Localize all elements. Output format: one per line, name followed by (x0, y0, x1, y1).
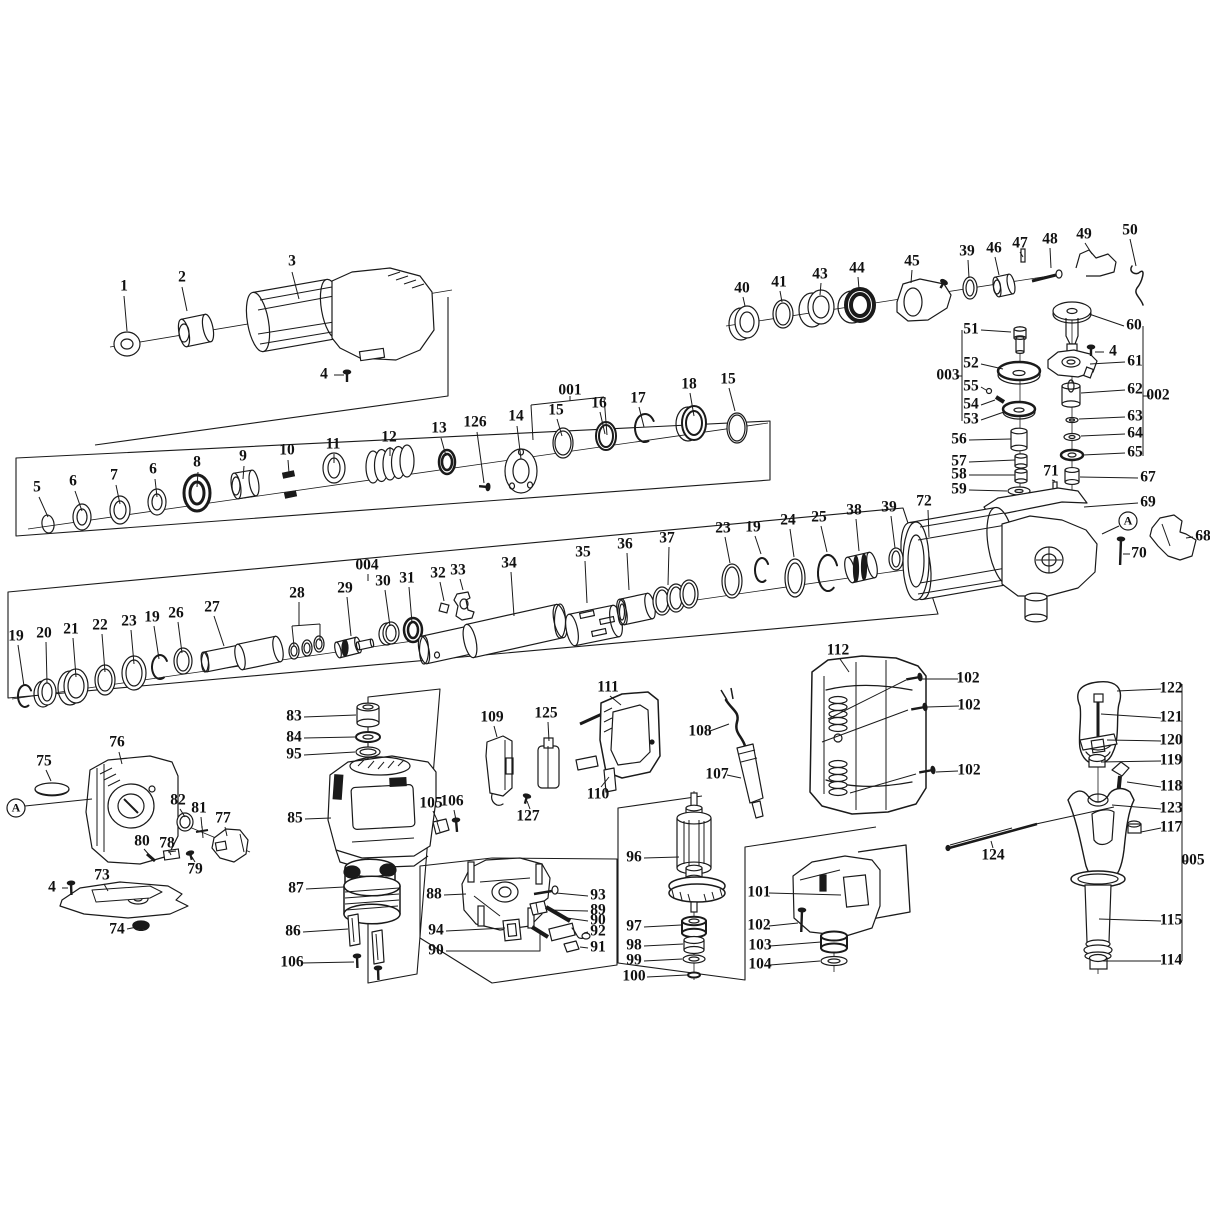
leader-line (1085, 243, 1092, 254)
parts-diagram: AA12345676891011121312614001151617181540… (0, 0, 1210, 1210)
screw-head (343, 370, 351, 374)
leader-line (729, 388, 735, 411)
leader-line (969, 460, 1015, 462)
leader-line (644, 925, 681, 927)
part-label-65: 65 (1127, 444, 1143, 461)
part-label-6: 6 (149, 461, 157, 478)
leader-line (627, 553, 629, 590)
part-label-29: 29 (337, 580, 353, 597)
part-label-106: 106 (280, 954, 304, 971)
leader-line (856, 519, 859, 551)
part-label-126: 126 (463, 414, 487, 431)
leader-line (1083, 453, 1125, 455)
leader-line (1050, 248, 1051, 268)
part-label-96: 96 (626, 849, 642, 866)
leader-line (1080, 477, 1138, 478)
part-label-27: 27 (204, 599, 220, 616)
leader-line (304, 752, 355, 755)
screw-head (1087, 345, 1095, 349)
part-label-105: 105 (419, 795, 443, 812)
part-label-2: 2 (178, 269, 186, 286)
part-label-125: 125 (534, 705, 558, 722)
part-label-127: 127 (516, 808, 540, 825)
part-label-77: 77 (215, 810, 231, 827)
leader-line (1117, 689, 1161, 691)
leader-line (727, 775, 741, 778)
part-label-76: 76 (109, 734, 125, 751)
part-label-82: 82 (170, 792, 186, 809)
leader-line (668, 547, 669, 585)
part-label-1: 1 (120, 278, 128, 295)
part-label-13: 13 (431, 420, 447, 437)
part-label-4: 4 (48, 879, 56, 896)
part-label-25: 25 (811, 509, 827, 526)
part-label-90: 90 (428, 942, 444, 959)
part-label-003: 003 (936, 367, 960, 384)
leader-line (969, 490, 1007, 491)
leader-line (644, 959, 682, 961)
leader-line (968, 260, 969, 278)
leader-line (477, 432, 484, 483)
leader-line (46, 770, 51, 781)
part-label-102: 102 (957, 697, 981, 714)
leader-line (446, 934, 540, 951)
part-label-50: 50 (1122, 222, 1138, 239)
screw-head (374, 966, 382, 970)
leader-line (182, 287, 187, 311)
leader-line (1127, 782, 1161, 787)
part-label-11: 11 (326, 436, 341, 453)
part-label-38: 38 (846, 502, 862, 519)
part-label-33: 33 (450, 562, 466, 579)
part-label-99: 99 (626, 952, 642, 969)
leader-line (303, 929, 348, 932)
leader-line (770, 961, 820, 965)
leader-line (201, 817, 202, 828)
part-label-102: 102 (956, 670, 980, 687)
part-label-51: 51 (963, 321, 979, 338)
part-label-78: 78 (159, 835, 175, 852)
part-label-69: 69 (1140, 494, 1156, 511)
part-label-71: 71 (1043, 463, 1059, 480)
part-label-47: 47 (1012, 235, 1028, 252)
leader-line (790, 529, 794, 557)
part-label-40: 40 (734, 280, 750, 297)
leader-line (385, 590, 390, 626)
leader-line (25, 799, 92, 806)
part-label-31: 31 (399, 570, 415, 587)
part-label-110: 110 (587, 786, 610, 803)
part-label-91: 91 (590, 939, 606, 956)
part-label-61: 61 (1127, 353, 1143, 370)
leader-line (511, 572, 514, 616)
leader-line (710, 724, 729, 731)
part-label-53: 53 (963, 411, 979, 428)
part-label-16: 16 (591, 395, 607, 412)
part-label-102: 102 (957, 762, 981, 779)
part-label-118: 118 (1160, 778, 1183, 795)
part-label-120: 120 (1159, 732, 1183, 749)
part-label-106: 106 (440, 793, 464, 810)
leader-line (306, 887, 344, 889)
part-label-59: 59 (951, 481, 967, 498)
leader-line (969, 439, 1011, 440)
part-label-5: 5 (33, 479, 41, 496)
screw-head (930, 766, 935, 774)
leader-line (1084, 503, 1138, 507)
part-label-7: 7 (110, 467, 118, 484)
part-label-12: 12 (381, 429, 397, 446)
part-label-49: 49 (1076, 226, 1092, 243)
part-label-20: 20 (36, 625, 52, 642)
leader-line (769, 923, 798, 926)
part-label-55: 55 (963, 378, 979, 395)
part-label-6: 6 (69, 473, 77, 490)
part-label-94: 94 (428, 922, 444, 939)
leader-line (288, 460, 289, 473)
leader-line (981, 330, 1011, 332)
leader-line (995, 257, 999, 275)
leader-line (39, 497, 48, 517)
part-label-19: 19 (745, 519, 761, 536)
part-label-85: 85 (287, 810, 303, 827)
leader-line (647, 975, 687, 977)
part-label-26: 26 (168, 605, 184, 622)
part-label-124: 124 (981, 847, 1005, 864)
leader-line (214, 616, 224, 646)
part-label-107: 107 (705, 766, 729, 783)
leader-line (304, 715, 356, 717)
part-label-24: 24 (780, 512, 796, 529)
part-label-19: 19 (144, 609, 160, 626)
part-label-22: 22 (92, 617, 108, 634)
leader-line (580, 947, 588, 948)
leader-line (981, 412, 1004, 420)
part-label-002: 002 (1146, 387, 1170, 404)
part-label-15: 15 (720, 371, 736, 388)
screw-head (798, 908, 806, 912)
leader-line (292, 624, 320, 626)
part-label-21: 21 (63, 621, 79, 638)
part-label-86: 86 (285, 923, 301, 940)
part-label-64: 64 (1127, 425, 1143, 442)
part-label-122: 122 (1159, 680, 1183, 697)
leader-line (770, 942, 821, 946)
part-label-87: 87 (288, 880, 304, 897)
part-label-81: 81 (191, 800, 207, 817)
part-label-117: 117 (1160, 819, 1183, 836)
part-label-70: 70 (1131, 545, 1147, 562)
part-label-005: 005 (1181, 852, 1205, 869)
leader-line (531, 405, 533, 440)
screw-head (486, 483, 491, 491)
screw-head (353, 954, 361, 958)
part-label-46: 46 (986, 240, 1002, 257)
leader-line (981, 400, 995, 405)
leader-line (981, 387, 986, 390)
diagram-canvas: AA12345676891011121312614001151617181540… (0, 0, 1210, 1210)
part-label-88: 88 (426, 886, 442, 903)
leader-line (821, 526, 827, 552)
part-label-101: 101 (747, 884, 770, 901)
part-label-79: 79 (187, 861, 203, 878)
part-label-72: 72 (916, 493, 932, 510)
part-label-108: 108 (688, 723, 712, 740)
part-label-41: 41 (771, 274, 787, 291)
leader-line (1079, 417, 1125, 419)
part-label-10: 10 (279, 442, 295, 459)
part-label-102: 102 (747, 917, 771, 934)
parts-layer: AA (7, 249, 1196, 980)
leader-line (1141, 828, 1161, 832)
part-label-28: 28 (289, 585, 305, 602)
leader-line (1102, 526, 1119, 534)
part-label-119: 119 (1160, 752, 1183, 769)
part-label-115: 115 (1160, 912, 1183, 929)
view-marker-letter: A (12, 800, 21, 814)
part-label-23: 23 (715, 520, 731, 537)
leader-line (1081, 434, 1125, 436)
part-label-17: 17 (630, 390, 646, 407)
part-label-004: 004 (355, 557, 379, 574)
part-label-100: 100 (622, 968, 646, 985)
leader-line (936, 771, 958, 772)
part-label-68: 68 (1195, 528, 1210, 545)
screw-head (1117, 537, 1125, 541)
part-label-8: 8 (193, 454, 201, 471)
leader-line (743, 297, 745, 306)
part-label-95: 95 (286, 746, 302, 763)
part-label-4: 4 (320, 366, 328, 383)
leader-line (1052, 480, 1055, 481)
part-label-121: 121 (1159, 709, 1182, 726)
leader-line (124, 296, 127, 331)
leader-line (154, 626, 159, 659)
part-label-60: 60 (1126, 317, 1142, 334)
leader-line (644, 857, 679, 858)
leader-line (644, 944, 683, 946)
part-label-19: 19 (8, 628, 24, 645)
leader-line (347, 597, 351, 636)
leader-line (891, 516, 895, 548)
part-label-92: 92 (590, 923, 606, 940)
part-label-74: 74 (109, 921, 125, 938)
part-label-9: 9 (239, 448, 247, 465)
part-label-15: 15 (548, 402, 564, 419)
part-label-3: 3 (288, 253, 296, 270)
part-label-103: 103 (748, 937, 772, 954)
leader-line (585, 561, 587, 603)
part-label-112: 112 (827, 642, 850, 659)
part-label-23: 23 (121, 613, 137, 630)
part-label-63: 63 (1127, 408, 1143, 425)
leader-line (725, 537, 730, 563)
leader-line (46, 642, 47, 683)
screw-head (186, 850, 194, 856)
part-label-75: 75 (36, 753, 52, 770)
part-label-52: 52 (963, 355, 979, 372)
leader-line (556, 893, 588, 896)
part-label-001: 001 (558, 382, 581, 399)
leader-line (755, 536, 761, 554)
part-label-83: 83 (286, 708, 302, 725)
view-marker-letter: A (1124, 513, 1133, 527)
leader-line (304, 737, 355, 738)
assembly-group-box (8, 508, 938, 698)
part-label-44: 44 (849, 260, 865, 277)
part-label-43: 43 (812, 266, 828, 283)
part-label-114: 114 (1160, 952, 1183, 969)
part-label-14: 14 (508, 408, 524, 425)
part-label-104: 104 (748, 956, 772, 973)
leader-line (1130, 239, 1136, 266)
part-label-84: 84 (286, 729, 302, 746)
part-label-34: 34 (501, 555, 517, 572)
leader-line (440, 582, 444, 601)
leader-line (1081, 390, 1125, 393)
part-label-56: 56 (951, 431, 967, 448)
leader-line (18, 645, 24, 686)
part-label-48: 48 (1042, 231, 1058, 248)
part-label-67: 67 (1140, 469, 1156, 486)
screw-head (67, 881, 75, 885)
part-label-37: 37 (659, 530, 675, 547)
leader-line (302, 962, 354, 963)
part-label-111: 111 (597, 679, 619, 696)
part-label-36: 36 (617, 536, 633, 553)
leader-line (1089, 314, 1124, 326)
part-label-35: 35 (575, 544, 591, 561)
part-label-80: 80 (134, 833, 150, 850)
part-label-30: 30 (375, 573, 391, 590)
part-label-73: 73 (94, 867, 110, 884)
screw-head (523, 793, 531, 799)
leader-line (494, 726, 497, 737)
part-label-123: 123 (1159, 800, 1183, 817)
part-label-39: 39 (959, 243, 975, 260)
leader-line (1101, 761, 1161, 762)
part-label-39: 39 (881, 499, 897, 516)
part-label-109: 109 (480, 709, 504, 726)
part-label-97: 97 (626, 918, 642, 935)
part-label-32: 32 (430, 565, 446, 582)
leader-line (460, 579, 463, 590)
part-label-45: 45 (904, 253, 920, 270)
part-label-18: 18 (681, 376, 697, 393)
leader-line (305, 818, 331, 819)
part-label-62: 62 (1127, 381, 1143, 398)
leader-line (927, 706, 959, 707)
part-label-4: 4 (1109, 343, 1117, 360)
